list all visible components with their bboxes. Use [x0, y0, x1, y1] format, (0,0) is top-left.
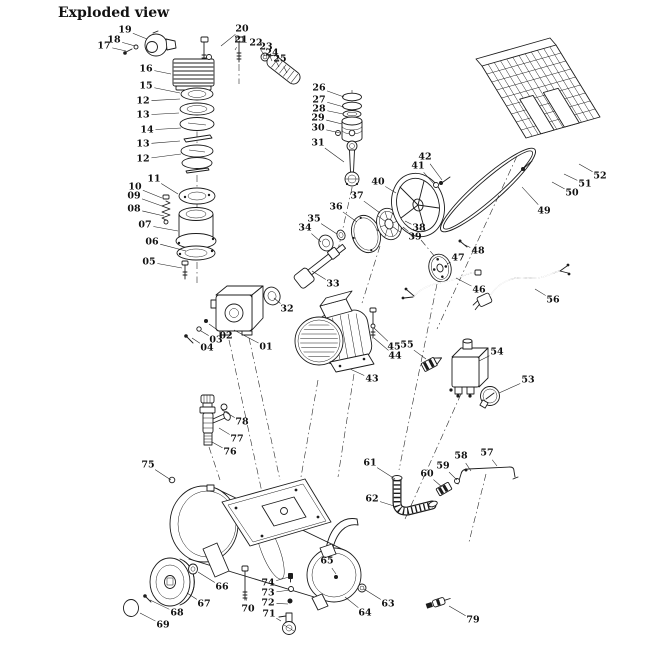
part-label-06: 06	[145, 237, 159, 248]
part-label-71: 71	[262, 609, 275, 620]
leader-line-16	[154, 71, 171, 74]
leader-line-63	[364, 589, 381, 599]
key-pin-48	[459, 240, 468, 248]
leader-line-51	[564, 174, 577, 180]
part-label-13: 13	[136, 139, 149, 150]
leader-line-07	[153, 227, 178, 231]
crankcase	[184, 285, 282, 343]
screw-04	[184, 334, 193, 343]
washer-73	[289, 587, 294, 592]
washer-72	[288, 599, 293, 604]
leader-line-71	[276, 618, 281, 621]
piston-ring-27	[343, 102, 362, 110]
part-label-60: 60	[420, 469, 434, 480]
stud-bolt-10	[163, 195, 169, 199]
leader-line-04	[192, 338, 200, 343]
part-label-39: 39	[408, 232, 422, 243]
leader-line-09	[142, 199, 162, 206]
part-label-49: 49	[537, 206, 551, 217]
part-label-13: 13	[136, 110, 149, 121]
leader-line-62	[380, 502, 394, 506]
leader-line-18	[122, 42, 135, 46]
part-label-51: 51	[578, 179, 591, 190]
part-label-61: 61	[363, 458, 376, 469]
part-label-66: 66	[215, 582, 229, 593]
part-label-33: 33	[326, 279, 339, 290]
leader-line-35	[321, 224, 337, 234]
part-label-73: 73	[261, 588, 274, 599]
part-label-05: 05	[142, 257, 155, 268]
leader-line-64	[345, 597, 358, 608]
leader-line-36	[343, 212, 357, 222]
screw-74	[288, 573, 293, 582]
screw-02	[204, 319, 208, 323]
part-label-74: 74	[261, 578, 275, 589]
part-label-72: 72	[261, 598, 274, 609]
washer-41	[434, 183, 439, 188]
leader-line-14	[155, 128, 181, 130]
leader-line-59	[449, 472, 457, 480]
leader-line-72	[276, 603, 288, 604]
nut-78	[221, 404, 227, 410]
part-label-69: 69	[156, 620, 170, 631]
wheel-assembly	[124, 558, 249, 617]
part-label-36: 36	[329, 202, 343, 213]
bolt-05	[182, 261, 188, 265]
leader-line-73	[276, 590, 290, 592]
part-label-75: 75	[141, 460, 154, 471]
leader-line-77	[219, 428, 230, 435]
part-label-35: 35	[307, 214, 320, 225]
safety-valve	[200, 395, 232, 445]
leader-line-50	[552, 182, 565, 189]
part-label-47: 47	[451, 253, 464, 264]
part-label-58: 58	[454, 451, 468, 462]
leader-line-66	[198, 572, 215, 582]
leader-line-60	[433, 480, 442, 487]
check-valve	[421, 354, 444, 372]
part-label-52: 52	[593, 171, 606, 182]
leader-line-12	[151, 99, 180, 101]
part-label-25: 25	[273, 54, 286, 65]
leader-line-57	[492, 460, 497, 466]
part-label-43: 43	[365, 374, 378, 385]
part-label-46: 46	[472, 285, 486, 296]
leader-line-13	[151, 113, 179, 115]
leader-line-49	[522, 187, 538, 205]
part-label-20: 20	[235, 24, 249, 35]
leader-line-21	[235, 47, 237, 50]
plug-63	[358, 584, 366, 592]
leader-line-56	[535, 289, 546, 296]
cylinder-assembly	[162, 188, 216, 279]
leader-line-05	[157, 264, 182, 268]
leader-line-28	[327, 111, 343, 114]
piston-ring-26	[343, 93, 362, 101]
seal-ring-77	[222, 411, 231, 422]
leader-line-55	[414, 350, 426, 359]
exploded-view-drawing: 1918171615121314131220212223242526272829…	[0, 0, 661, 661]
leader-line-69	[140, 613, 155, 621]
part-label-07: 07	[138, 220, 151, 231]
leader-line-76	[212, 442, 223, 448]
leader-line-52	[579, 164, 593, 172]
leader-line-43	[350, 369, 364, 375]
oil-ring-28	[343, 111, 361, 118]
leader-line-79	[449, 606, 466, 616]
leader-line-29	[326, 120, 342, 124]
part-label-62: 62	[365, 494, 378, 505]
leader-line-45	[374, 328, 388, 341]
leader-line-31	[325, 148, 344, 162]
part-label-04: 04	[200, 343, 214, 354]
leader-line-08	[142, 211, 164, 216]
part-label-08: 08	[127, 204, 141, 215]
part-label-17: 17	[97, 41, 110, 52]
part-label-15: 15	[139, 81, 152, 92]
part-label-30: 30	[311, 123, 325, 134]
part-label-64: 64	[358, 608, 372, 619]
piston-29	[342, 117, 362, 142]
leader-line-34	[311, 234, 321, 242]
leader-line-17	[112, 48, 126, 51]
part-label-37: 37	[350, 191, 363, 202]
leader-line-37	[364, 201, 380, 213]
leader-line-12	[151, 154, 181, 158]
part-label-40: 40	[371, 177, 385, 188]
part-label-26: 26	[312, 83, 326, 94]
part-label-12: 12	[136, 96, 149, 107]
part-label-14: 14	[140, 125, 154, 136]
hubcap-69	[124, 600, 139, 617]
part-label-56: 56	[546, 295, 560, 306]
reed-valve-14	[184, 135, 212, 142]
washer-08	[164, 220, 168, 224]
belt-guard-grille	[476, 38, 600, 171]
pressure-gauge	[480, 387, 500, 409]
drain-cock-71	[279, 613, 296, 635]
grille-screw-51	[521, 161, 532, 171]
spring-09	[162, 201, 170, 220]
part-label-16: 16	[139, 64, 153, 75]
connecting-rod-31	[345, 141, 359, 186]
leader-line-11	[161, 184, 178, 194]
tank-bolt-65	[334, 575, 338, 579]
motor	[295, 291, 376, 372]
part-label-76: 76	[223, 447, 237, 458]
pressure-switch	[449, 339, 488, 398]
part-label-79: 79	[466, 615, 480, 626]
valve-plate-stack	[180, 88, 214, 173]
fitting-79	[425, 595, 451, 609]
part-label-53: 53	[521, 375, 534, 386]
gasket-06	[177, 246, 215, 260]
part-label-01: 01	[259, 342, 272, 353]
part-label-50: 50	[565, 188, 579, 199]
leader-line-61	[377, 468, 395, 479]
gasket-15	[181, 88, 213, 100]
part-label-54: 54	[490, 347, 504, 358]
part-label-48: 48	[471, 246, 485, 257]
part-label-68: 68	[170, 608, 184, 619]
nut-59	[455, 479, 460, 484]
washer-66	[189, 564, 198, 574]
part-label-42: 42	[418, 152, 431, 163]
leader-line-10	[143, 190, 162, 198]
part-label-70: 70	[241, 604, 255, 615]
part-label-31: 31	[311, 138, 324, 149]
washer-03	[197, 327, 201, 331]
part-label-11: 11	[147, 174, 160, 185]
leader-line-75	[155, 470, 171, 480]
leader-line-74	[276, 577, 289, 581]
outlet-hose	[392, 476, 438, 512]
gasket-12	[180, 103, 214, 115]
leader-line-03	[201, 331, 209, 336]
leader-line-19	[133, 33, 147, 39]
part-label-65: 65	[320, 556, 333, 567]
leader-line-27	[327, 102, 344, 107]
nut-75	[169, 477, 175, 483]
part-label-21: 21	[234, 35, 247, 46]
head-bolt-20	[201, 37, 208, 42]
leader-line-46	[456, 278, 471, 286]
part-label-09: 09	[127, 191, 141, 202]
leader-line-53	[499, 383, 520, 393]
part-label-59: 59	[436, 461, 450, 472]
leader-line-42	[430, 164, 442, 180]
part-label-12: 12	[136, 154, 149, 165]
part-label-77: 77	[230, 434, 243, 445]
part-label-63: 63	[381, 599, 394, 610]
part-label-57: 57	[480, 448, 493, 459]
gasket-12b	[182, 158, 212, 169]
axle-pin-68	[143, 594, 151, 602]
leader-line-13	[151, 141, 180, 143]
part-label-78: 78	[235, 417, 249, 428]
nut-35	[336, 229, 347, 241]
cylinder-07	[176, 208, 216, 249]
motor-bolt-44-45	[370, 308, 376, 338]
drive-belt	[433, 140, 543, 240]
part-label-45: 45	[387, 342, 400, 353]
part-label-55: 55	[400, 340, 413, 351]
tank-dome-64	[307, 548, 361, 602]
part-label-32: 32	[280, 304, 293, 315]
part-label-67: 67	[197, 599, 210, 610]
piston-assembly	[336, 93, 363, 186]
leader-line-20	[221, 34, 235, 46]
leader-line-26	[327, 91, 344, 97]
axle-bolt-70	[242, 566, 248, 600]
exploded-view-page: Exploded view	[0, 0, 661, 661]
